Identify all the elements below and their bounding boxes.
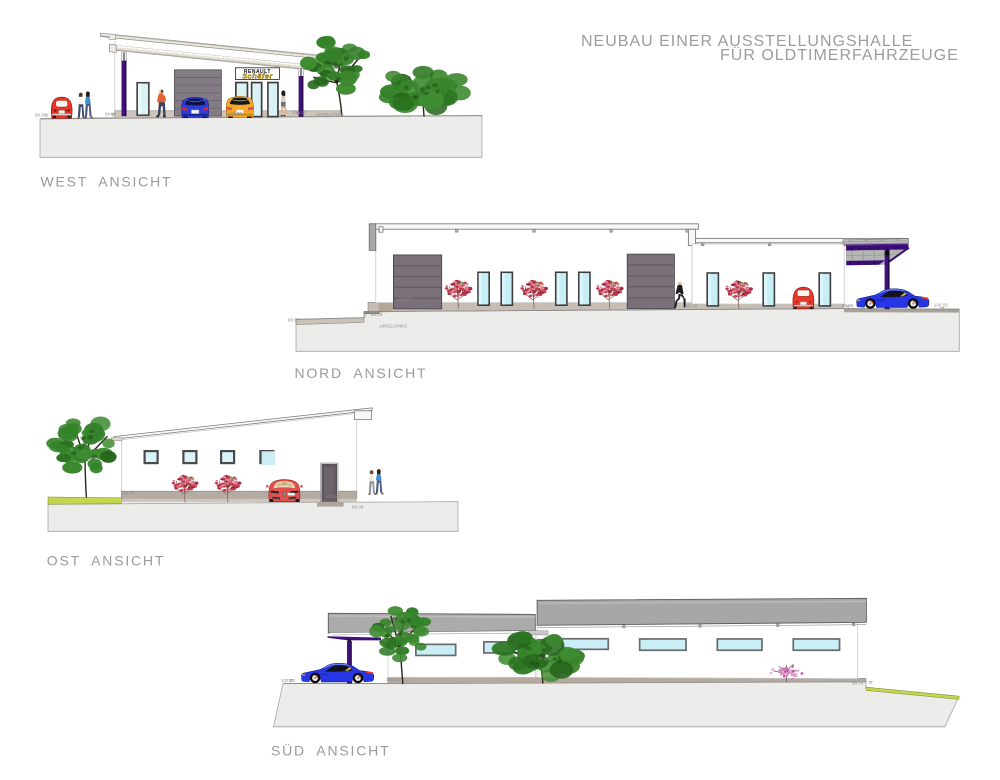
- svg-text:99.96: 99.96: [842, 303, 854, 308]
- svg-text:99.76: 99.76: [852, 680, 864, 685]
- svg-text:99.09: 99.09: [371, 312, 383, 317]
- svg-text:99.09: 99.09: [352, 505, 364, 510]
- svg-text:99.67: 99.67: [288, 318, 300, 323]
- svg-text:100.00: 100.00: [228, 111, 242, 116]
- svg-text:100.00: 100.00: [386, 677, 400, 682]
- svg-text:WEST ANSICHT: WEST ANSICHT: [41, 174, 173, 190]
- svg-text:URGELÄNDE: URGELÄNDE: [380, 323, 408, 328]
- svg-text:99.80: 99.80: [686, 303, 698, 308]
- svg-text:100.00: 100.00: [325, 495, 339, 500]
- svg-text:99.90: 99.90: [105, 112, 117, 117]
- svg-text:FÜR OLDTIMERFAHRZEUGE: FÜR OLDTIMERFAHRZEUGE: [720, 46, 959, 64]
- svg-text:100.00: 100.00: [281, 678, 295, 683]
- svg-text:NORD ANSICHT: NORD ANSICHT: [295, 365, 428, 381]
- svg-text:OST ANSICHT: OST ANSICHT: [47, 552, 165, 568]
- svg-text:100.00: 100.00: [934, 302, 948, 307]
- svg-text:99.76: 99.76: [123, 490, 135, 495]
- svg-text:SÜD ANSICHT: SÜD ANSICHT: [271, 741, 390, 758]
- svg-text:100.00: 100.00: [398, 297, 412, 302]
- svg-text:Schäfer: Schäfer: [242, 72, 273, 81]
- svg-text:URGELÄNDE: URGELÄNDE: [316, 112, 344, 117]
